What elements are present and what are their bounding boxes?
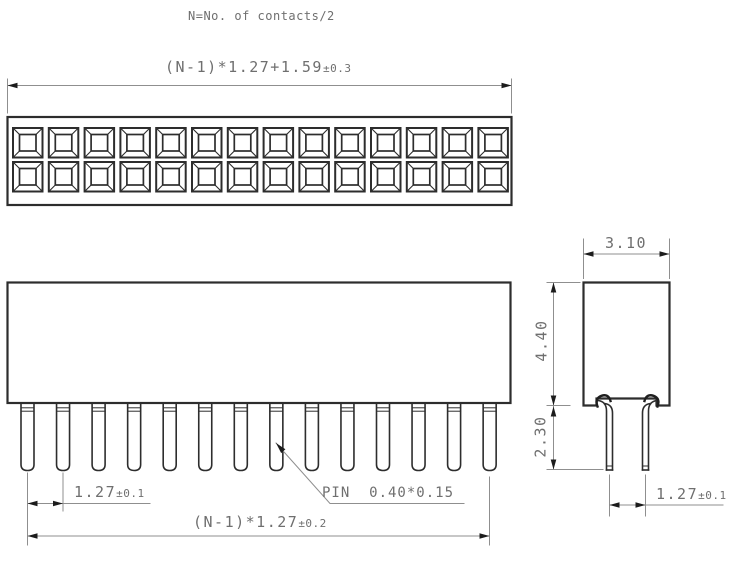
pin-shank [483,403,496,471]
hole-inner-square [485,135,502,152]
hole-inner-square [234,135,251,152]
hole-inner-square [449,169,466,186]
arrowhead-left [28,533,38,539]
pin-outer-edge [649,401,658,471]
arrowhead-left [610,502,620,508]
dim-label-front-pitch: 1.27±0.1 [74,485,145,500]
arrowhead-down [551,460,557,470]
top-view [8,79,512,205]
arrowhead-down [551,396,557,406]
pin-shank [270,403,283,471]
pin-shank [377,403,390,471]
dim-tolerance: ±0.3 [323,62,352,75]
side-view [547,239,723,516]
pin-shank [163,403,176,471]
pin-callout-label: PIN 0.40*0.15 [322,486,454,500]
hole-inner-square [127,135,143,152]
arrowhead-right [502,83,512,89]
side-view-body-outline [584,283,670,406]
hole-inner-square [485,169,502,186]
dim-label-front-total: (N-1)*1.27±0.2 [193,515,327,530]
dim-value: (N-1)*1.27 [193,513,298,531]
pin-outer-edge [598,401,607,471]
dim-label-side-width: 3.10 [600,236,652,251]
hole-inner-square [91,169,108,186]
hole-inner-square [55,135,72,152]
pin-shank [57,403,70,471]
hole-inner-square [449,135,466,152]
arrowhead-left [8,83,18,89]
pin-shank [341,403,354,471]
hole-inner-square [378,135,395,152]
pin-shank [92,403,105,471]
hole-inner-square [342,135,359,152]
hole-inner-square [306,169,323,186]
drawing-canvas [0,0,731,561]
hole-inner-square [270,169,287,186]
hole-inner-square [199,135,216,152]
dim-label-body-height: 4.40 [535,311,550,371]
hole-inner-square [127,169,143,186]
pin-shank [448,403,461,471]
pin-shank [234,403,247,471]
hole-inner-square [413,169,430,186]
dim-label-top-width: (N-1)*1.27+1.59±0.3 [165,60,351,75]
pin-shank [199,403,212,471]
front-view-body-outline [8,283,511,404]
hole-inner-square [270,135,287,152]
pin-shank [128,403,141,471]
arrowhead-right [660,251,670,257]
hole-inner-square [20,135,37,152]
hole-inner-square [163,169,180,186]
dim-tolerance: ±0.1 [116,487,145,500]
dim-tolerance: ±0.2 [298,517,327,530]
arrowhead-up [551,283,557,293]
front-view [8,283,511,546]
arrowhead-right [53,501,63,507]
dim-label-pin-length: 2.30 [534,407,549,467]
arrowhead-up [551,407,557,417]
hole-inner-square [413,135,430,152]
dim-value: 1.27 [74,483,116,501]
hole-inner-square [234,169,251,186]
hole-inner-square [55,169,72,186]
hole-inner-square [20,169,37,186]
dim-value: 1.27 [656,485,698,503]
side-pin-left [597,395,613,470]
dim-label-side-pitch: 1.27±0.1 [656,487,727,502]
dim-tolerance: ±0.1 [698,489,727,502]
hole-inner-square [163,135,180,152]
arrowhead-left [28,501,38,507]
arrowhead-right [480,533,490,539]
arrowhead-right [636,502,646,508]
hole-inner-square [342,169,359,186]
pin-shank [412,403,425,471]
hole-inner-square [378,169,395,186]
pin-shank [21,403,34,471]
pin-shank [305,403,318,471]
hole-inner-square [91,135,108,152]
socket-holes-grid [13,128,508,192]
arrowhead-left [584,251,594,257]
dim-value: (N-1)*1.27+1.59 [165,58,323,76]
pins-row [21,403,496,471]
note-contacts-formula: N=No. of contacts/2 [188,10,335,22]
hole-inner-square [199,169,216,186]
technical-drawing-page: N=No. of contacts/2 (N-1)*1.27+1.59±0.3 … [0,0,731,561]
hole-inner-square [306,135,323,152]
